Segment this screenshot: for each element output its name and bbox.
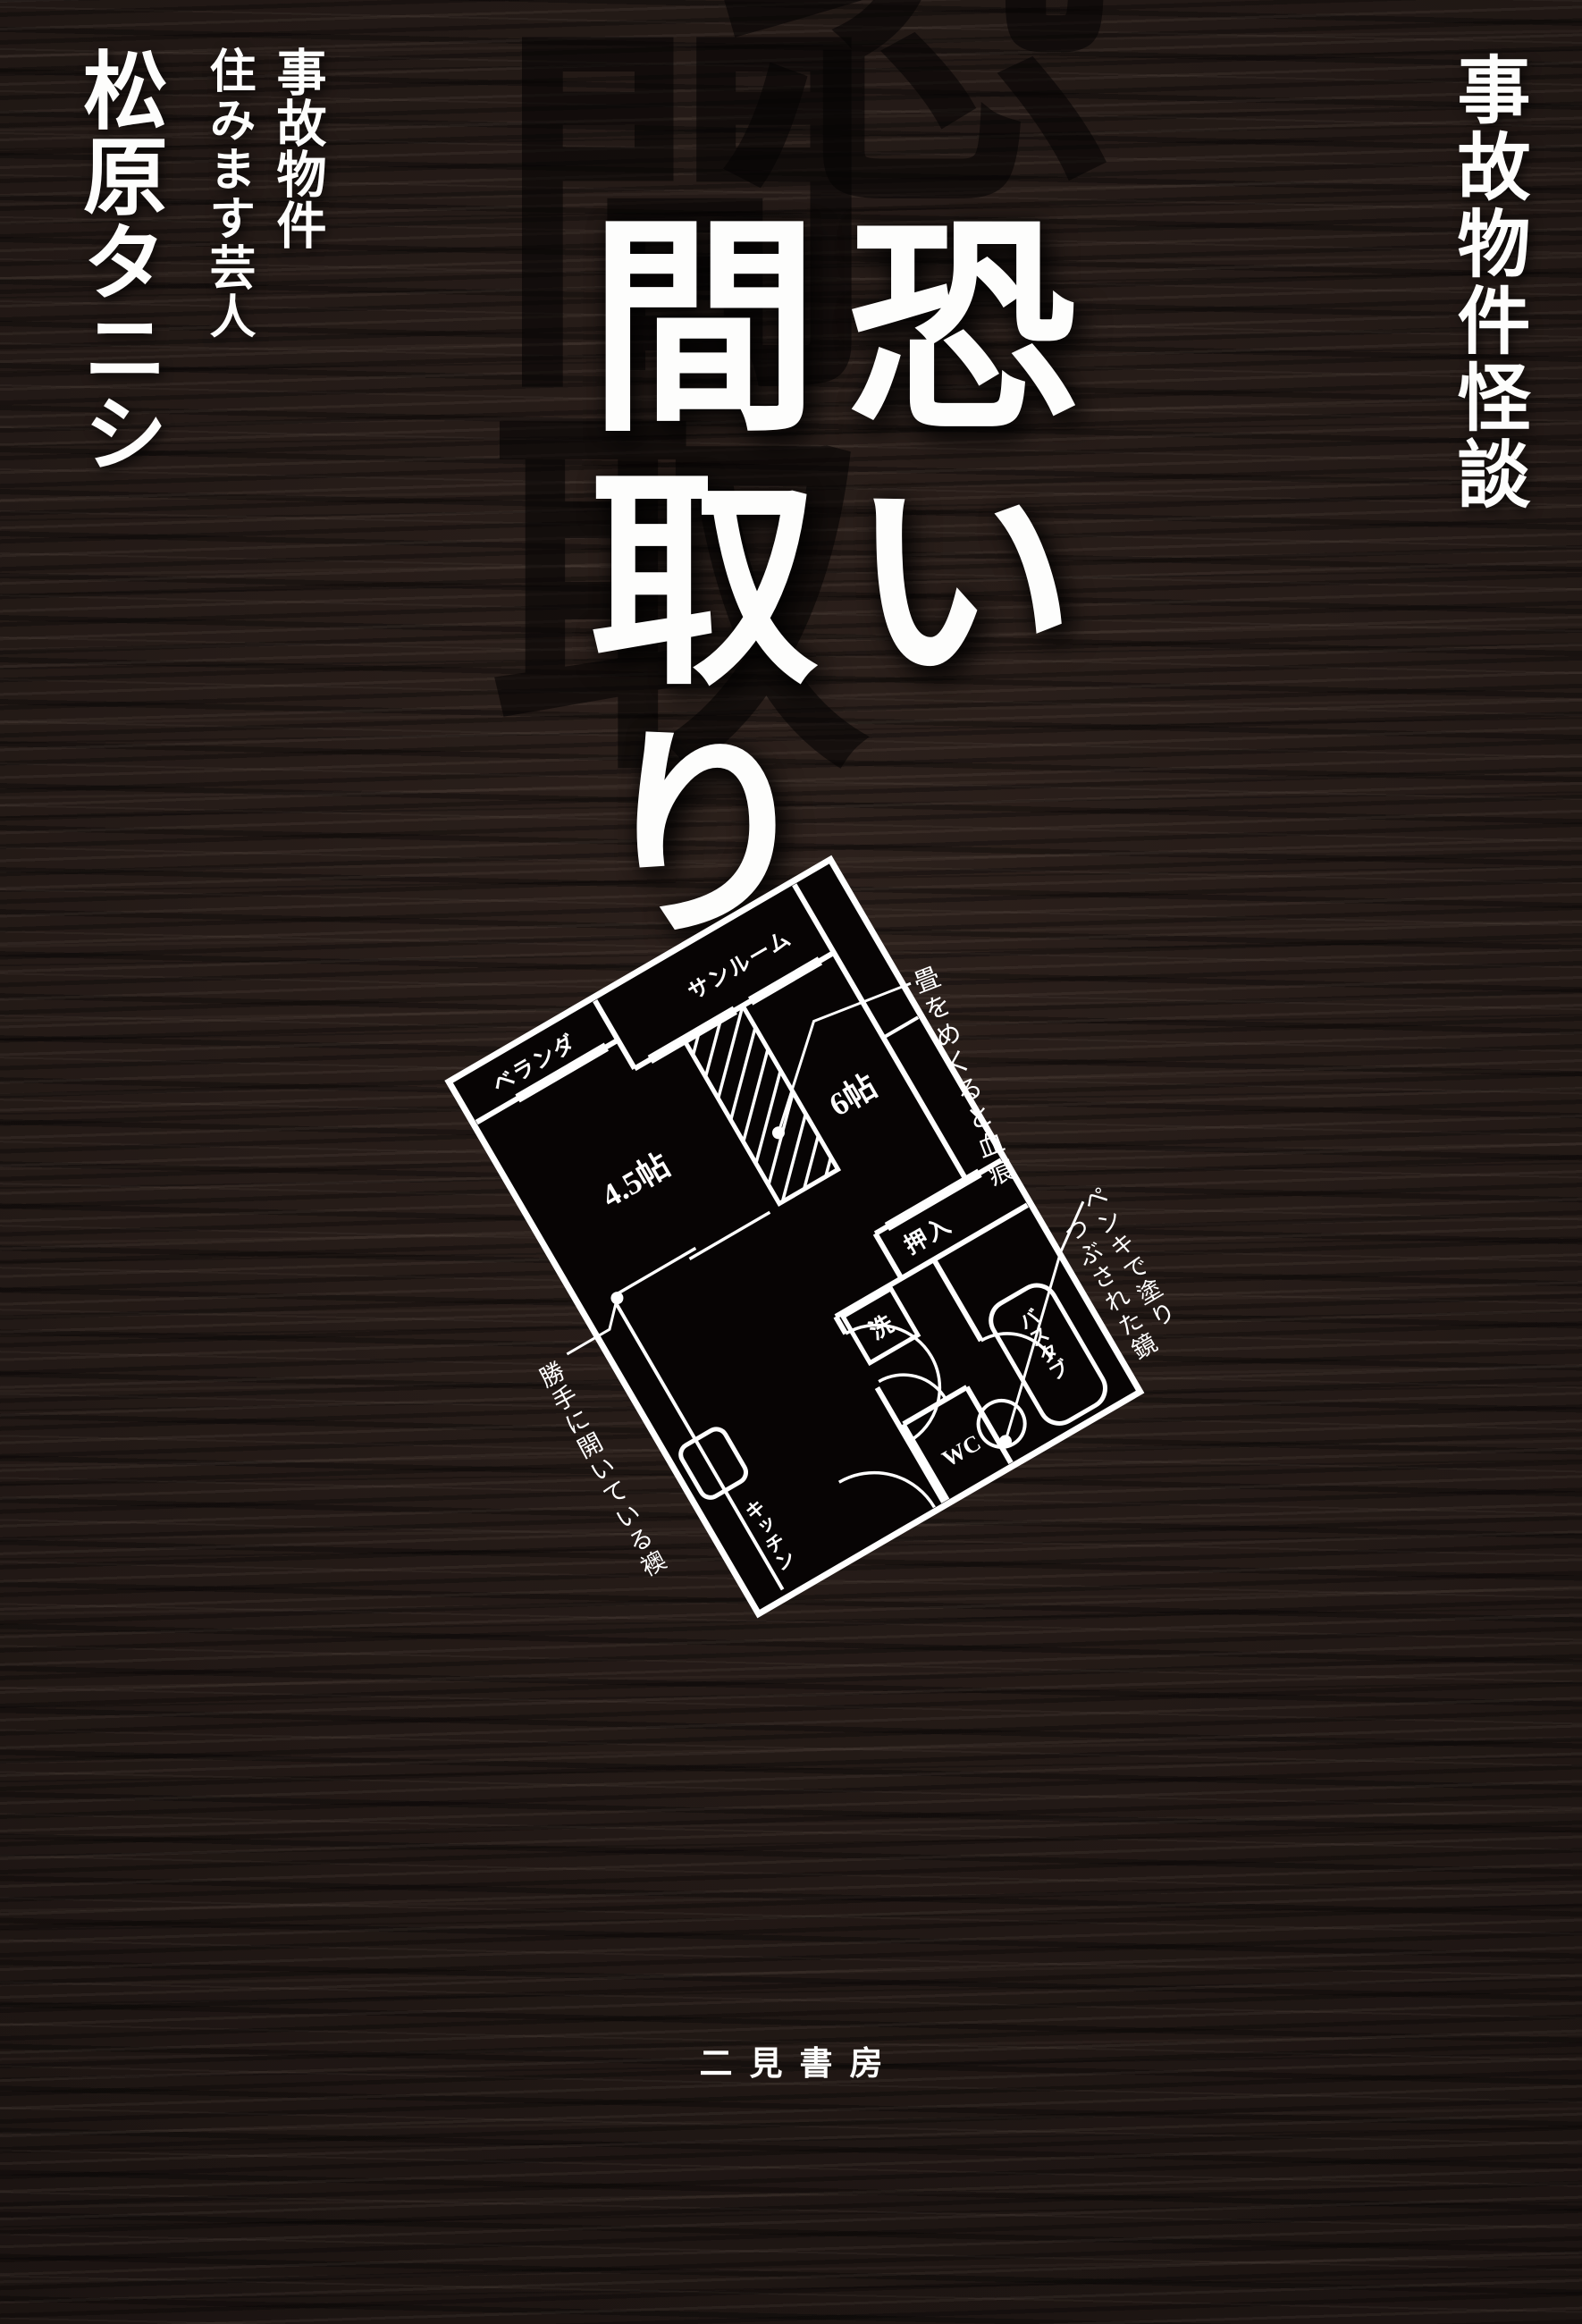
author-qualifier-line1: 事故物件 <box>261 46 333 601</box>
floorplan-svg: ベランダ サンルーム 4.5帖 6帖 押入 洗 WC バスタブ キッチン 畳をめ… <box>311 757 1284 1727</box>
author-name: 松原タニシ <box>57 46 180 601</box>
author-block: 事故物件 住みます芸人 松原タニシ <box>57 46 333 601</box>
book-cover: 恐 間 取 事故物件 住みます芸人 松原タニシ 事故物件怪談 恐い 間取り <box>0 0 1582 2324</box>
publisher-name: 二見書房 <box>0 2036 1582 2084</box>
floor-plan: ベランダ サンルーム 4.5帖 6帖 押入 洗 WC バスタブ キッチン 畳をめ… <box>445 855 1144 1617</box>
series-subtitle: 事故物件怪談 <box>1434 52 1540 552</box>
author-qualifier-line2: 住みます芸人 <box>194 46 261 601</box>
